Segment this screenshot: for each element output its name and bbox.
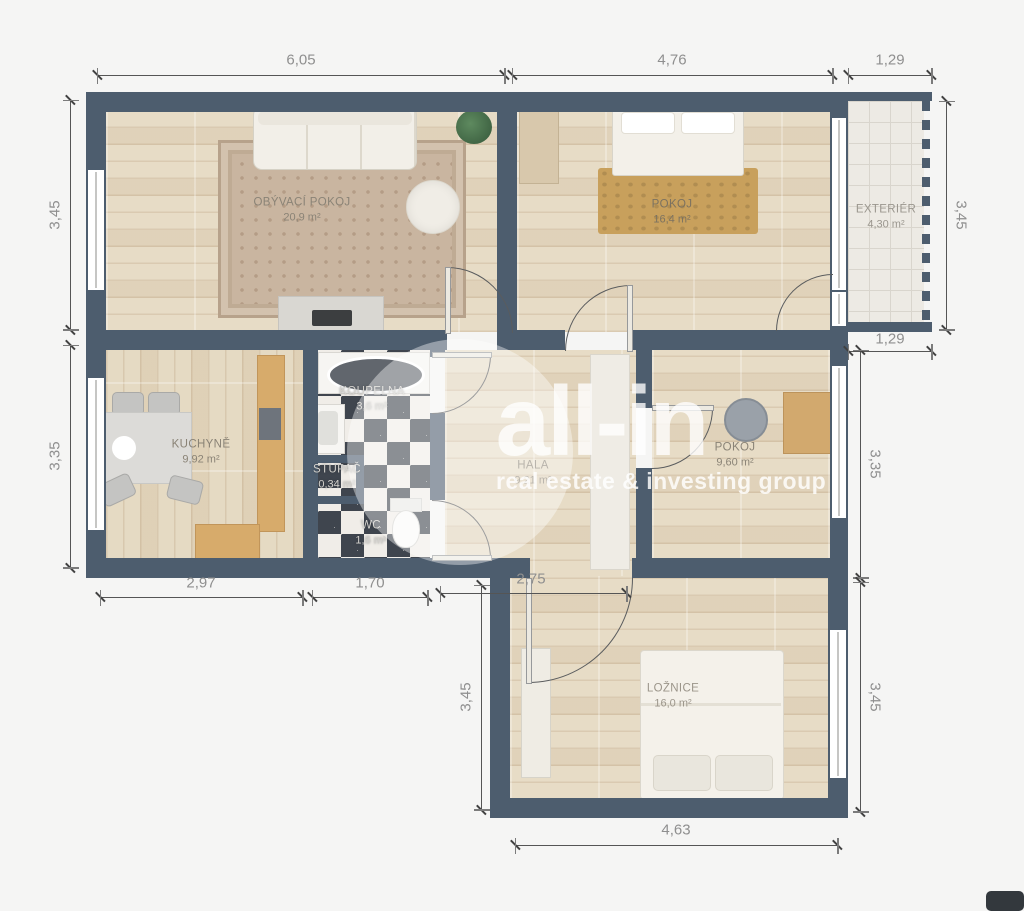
room-name: POKOJ [652, 197, 693, 212]
dim-left-loznice: 3,45 [458, 682, 475, 711]
dim-line-top-pokoj [512, 75, 833, 76]
kitchen-counter [257, 355, 285, 532]
door-leaf-living [445, 267, 451, 334]
dim-line-bottom-koupelna [312, 597, 428, 598]
plate [112, 436, 136, 460]
window-kitchen [88, 378, 104, 530]
wardrobe-top-room [519, 108, 559, 184]
dim-line-right-pokoj [860, 350, 861, 578]
dim-right-loznice: 3,45 [867, 682, 884, 711]
room-label-kuchyne: KUCHYNĚ 9,92 m² [172, 437, 231, 466]
room-name: LOŽNICE [647, 681, 699, 696]
dim-line-right-loznice [860, 582, 861, 812]
dim-line-top-living [97, 75, 505, 76]
dim-line-left-living [70, 100, 71, 330]
door-leaf-top-room [627, 285, 633, 352]
room-area: 1,6 m² [355, 533, 386, 547]
room-name: EXTERIÉR [856, 202, 916, 217]
wall-balcony-top [848, 92, 932, 101]
room-name: OBÝVACÍ POKOJ [254, 195, 351, 210]
window-bedroom [830, 630, 846, 778]
wall-middle-c [630, 330, 848, 350]
dim-balcony-bottom: 1,29 [875, 331, 904, 348]
dim-right-balcony: 3,45 [953, 200, 970, 229]
bed-top-room [612, 106, 744, 176]
dim-right-pokoj: 3,35 [867, 449, 884, 478]
dim-left-living: 3,45 [47, 200, 64, 229]
dim-bottom-koupelna: 1,70 [355, 575, 384, 592]
kitchen-appliance [259, 408, 281, 440]
dim-top-pokoj: 4,76 [657, 52, 686, 69]
room-label-pokoj-top: POKOJ 16,4 m² [652, 197, 693, 226]
wall-bedroom-bottom [490, 798, 848, 818]
plant [456, 110, 492, 144]
dim-line-right-balcony [946, 101, 947, 330]
wall-middle-b [512, 330, 565, 350]
window-top-room [832, 118, 846, 290]
dim-line-bottom-loznice [515, 845, 838, 846]
dim-line-left-loznice [481, 585, 482, 810]
dim-line-left-kitchen [70, 345, 71, 568]
washbasin-bowl [318, 411, 338, 445]
pillow [621, 112, 675, 134]
sofa [253, 106, 417, 170]
room-label-exterier: EXTERIÉR 4,30 m² [856, 202, 916, 231]
tv [312, 310, 352, 326]
corner-badge[interactable] [986, 891, 1024, 911]
dim-bottom-loznice: 4,63 [661, 822, 690, 839]
watermark-tagline: real estate & investing group [496, 468, 826, 495]
room-area: 20,9 m² [254, 210, 351, 224]
kitchen-island [195, 524, 260, 560]
window-living-room [88, 170, 104, 290]
room-name: KUCHYNĚ [172, 437, 231, 452]
pouf [406, 180, 460, 234]
room-area: 9,92 m² [172, 452, 231, 466]
wall-bedroom-top [632, 558, 848, 578]
balcony-door [832, 292, 846, 326]
room-area: 16,4 m² [652, 212, 693, 226]
room-area: 4,30 m² [856, 217, 916, 231]
dim-left-kitchen: 3,35 [47, 441, 64, 470]
room-label-living: OBÝVACÍ POKOJ 20,9 m² [254, 195, 351, 224]
wall-bedroom-left [490, 558, 510, 818]
pillow [715, 755, 773, 791]
room-area: 16,0 m² [647, 696, 699, 710]
dim-bottom-hala: 2,75 [516, 571, 545, 588]
dim-balcony-top: 1,29 [875, 52, 904, 69]
pillow [653, 755, 711, 791]
wall-top [86, 92, 848, 112]
room-label-loznice: LOŽNICE 16,0 m² [647, 681, 699, 710]
dim-line-bottom-hala [440, 593, 627, 594]
wall-middle-a [86, 330, 447, 350]
pillow [681, 112, 735, 134]
double-bed [640, 650, 784, 800]
dim-line-bottom-kitchen [100, 597, 303, 598]
floor-plan: OBÝVACÍ POKOJ 20,9 m² POKOJ 16,4 m² EXTE… [0, 0, 1024, 911]
watermark-brand: all-in [360, 372, 842, 470]
balcony-railing [922, 101, 930, 322]
dim-line-balcony-top [848, 75, 932, 76]
dim-top-living: 6,05 [286, 52, 315, 69]
dim-bottom-kitchen: 2,97 [186, 575, 215, 592]
